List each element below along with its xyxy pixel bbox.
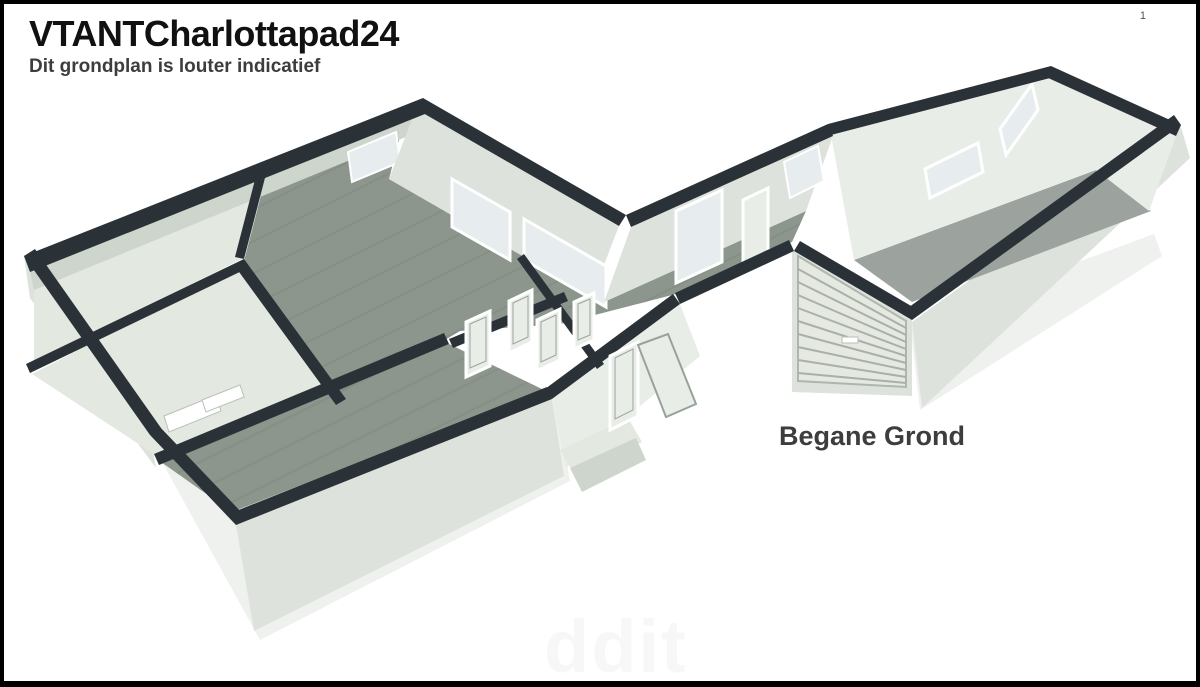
hall-door-frame-4 [574,293,594,349]
page-title: VTANTCharlottapad24 [29,14,399,54]
hall-door-frame-2 [509,290,532,353]
floor-plan-3d [4,4,1200,687]
front-door-frame [610,342,638,430]
hall-door-frame-1 [466,311,490,377]
garage-door-handle [842,337,858,343]
page-subtitle: Dit grondplan is louter indicatief [29,56,399,78]
hall-door-frame-3 [537,309,560,371]
title-block: VTANTCharlottapad24 Dit grondplan is lou… [29,14,399,78]
page-marker: 1 [1140,10,1146,22]
floor-label: Begane Grond [779,421,965,452]
floorplan-page: VTANTCharlottapad24 Dit grondplan is lou… [0,0,1200,687]
